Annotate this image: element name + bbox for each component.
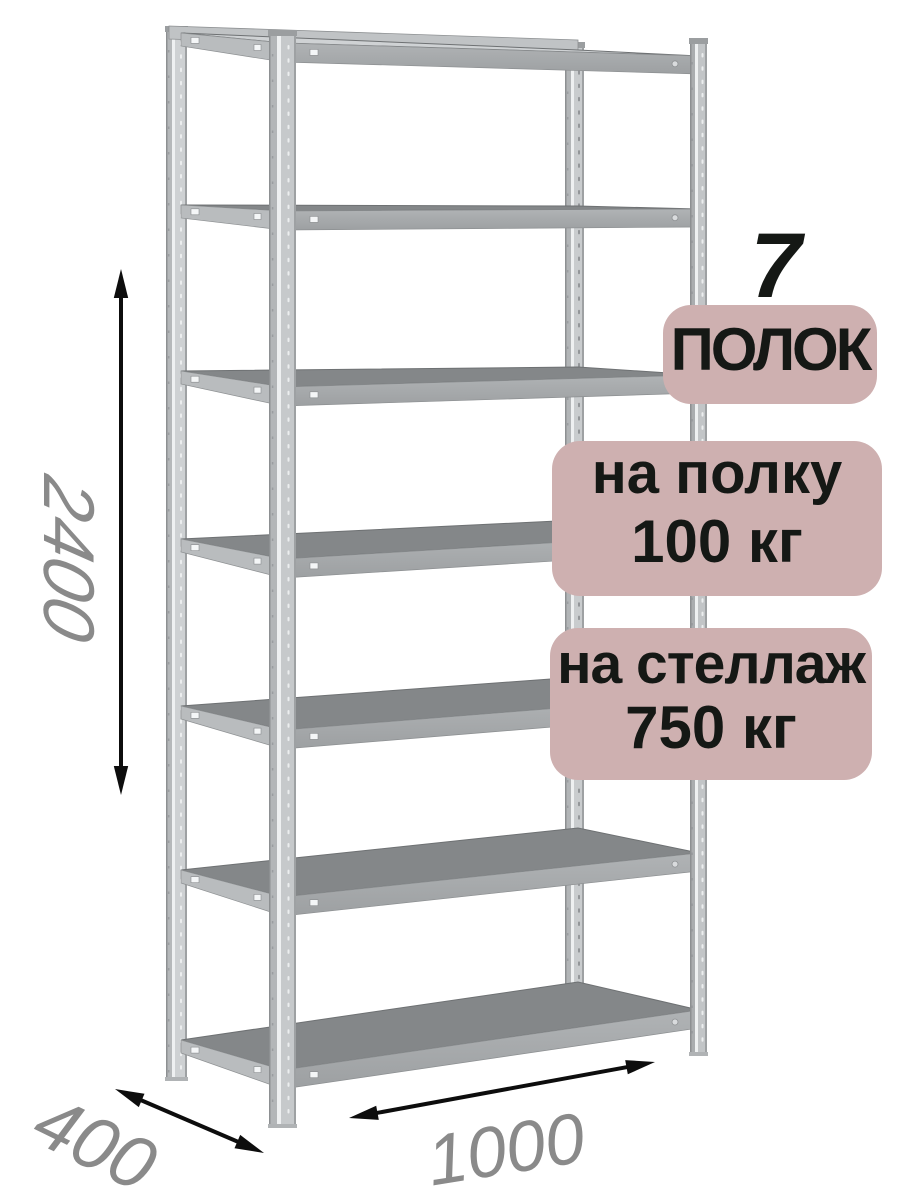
svg-text:400: 400	[21, 1079, 168, 1200]
svg-text:2400: 2400	[28, 468, 108, 649]
svg-text:1000: 1000	[422, 1099, 590, 1200]
